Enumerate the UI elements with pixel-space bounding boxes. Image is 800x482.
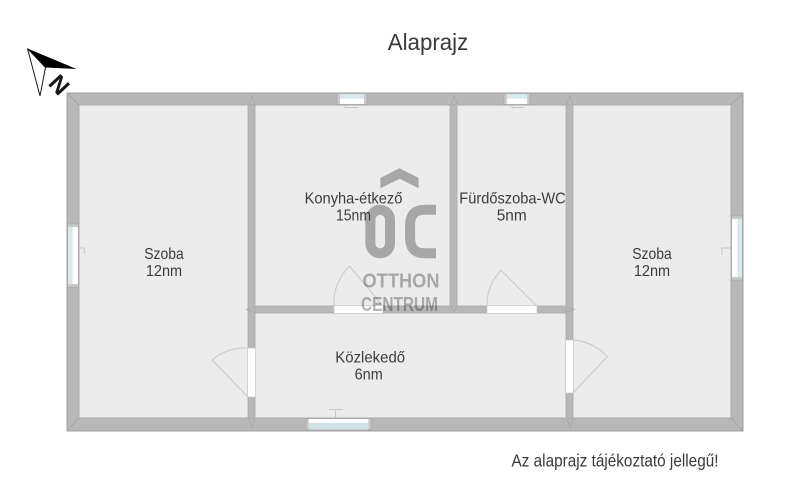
- svg-text:Az alaprajz tájékoztató jelleg: Az alaprajz tájékoztató jellegű!: [512, 451, 719, 471]
- svg-text:Közlekedő: Közlekedő: [335, 350, 405, 367]
- svg-text:Konyha-étkező: Konyha-étkező: [305, 191, 403, 208]
- svg-text:6nm: 6nm: [355, 367, 383, 384]
- svg-text:12nm: 12nm: [146, 263, 182, 280]
- svg-text:Alaprajz: Alaprajz: [388, 29, 469, 55]
- svg-text:Szoba: Szoba: [632, 246, 672, 263]
- svg-text:12nm: 12nm: [634, 263, 670, 280]
- svg-text:Szoba: Szoba: [144, 246, 184, 263]
- svg-text:Fürdőszoba-WC: Fürdőszoba-WC: [459, 191, 565, 208]
- svg-text:15nm: 15nm: [336, 208, 371, 225]
- svg-text:5nm: 5nm: [497, 208, 527, 225]
- svg-text:OTTHON: OTTHON: [363, 269, 440, 292]
- svg-text:CENTRUM: CENTRUM: [361, 293, 438, 316]
